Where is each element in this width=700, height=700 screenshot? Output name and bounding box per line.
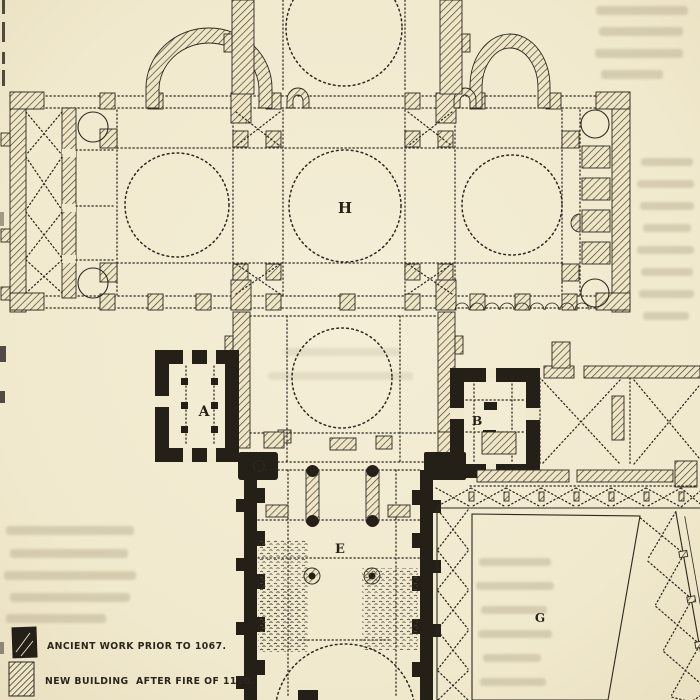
- label-tower-b: B: [472, 413, 483, 428]
- legend-swatch-solid-black: [11, 627, 37, 659]
- upper-west-wall-strip: [232, 0, 254, 94]
- east-outer-wall: [612, 92, 630, 312]
- label-tower-a: A: [198, 404, 211, 420]
- legend-label-ancient: ANCIENT WORK PRIOR TO 1067.: [47, 641, 227, 652]
- choir-west-wall: [244, 470, 257, 700]
- label-choir-e: E: [335, 542, 345, 557]
- floor-plan-figure: H: [0, 0, 700, 700]
- label-crossing-h: H: [338, 199, 352, 217]
- legend-label-new-building: NEW BUILDING AFTER FIRE OF 1120.: [45, 676, 255, 687]
- choir-east-wall: [420, 470, 433, 700]
- west-outer-wall: [10, 92, 26, 312]
- west-inner-wall: [62, 108, 76, 298]
- scanned-book-page: H: [0, 0, 700, 700]
- rubble-area-east: [362, 568, 418, 650]
- upper-east-wall-strip: [440, 0, 462, 94]
- label-garth-g: G: [535, 611, 545, 625]
- bay-pier: [612, 396, 624, 440]
- legend-swatch-diagonal-hatch: [9, 662, 34, 696]
